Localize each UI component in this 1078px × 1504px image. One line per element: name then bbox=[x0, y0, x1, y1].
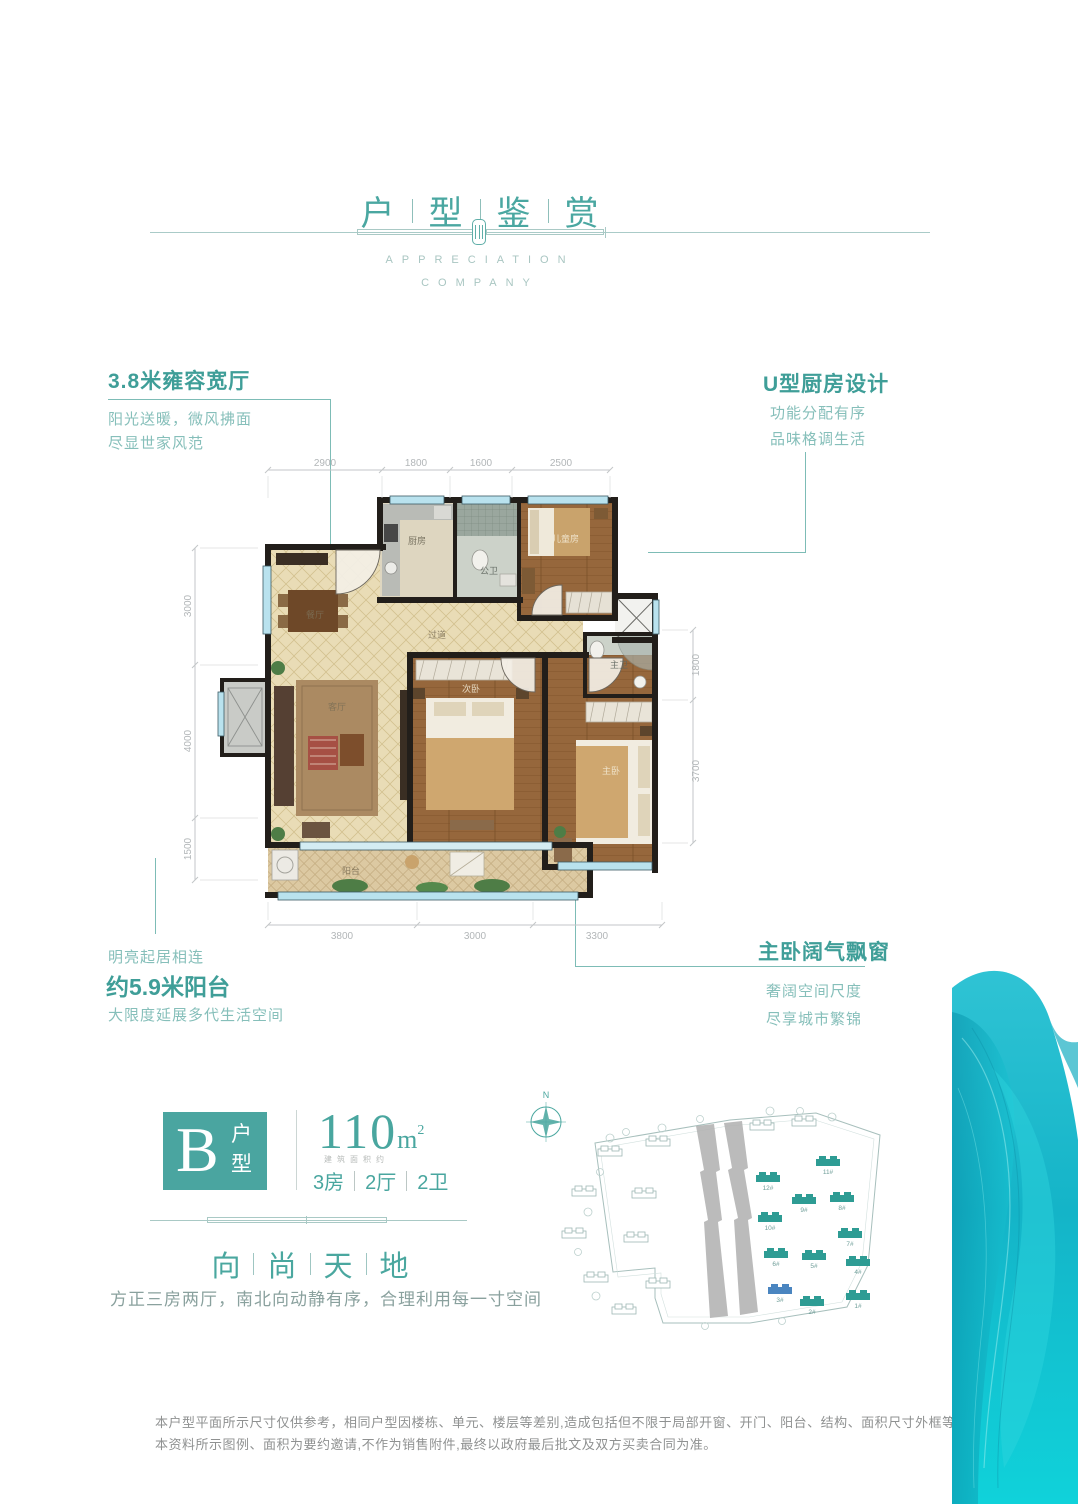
callout-line: 阳光送暖，微风拂面 bbox=[108, 408, 252, 429]
slogan: 向 尚 天 地 bbox=[150, 1243, 470, 1285]
callout-kitchen-title: U型厨房设计 bbox=[763, 368, 889, 398]
callout-line: 奢阔空间尺度 bbox=[766, 980, 862, 1001]
brochure-page: 户 型 鉴 赏 APPRECIATION COMPANY 3.8米雍容宽厅 阳光… bbox=[0, 0, 1078, 1504]
subtitle-appreciation: APPRECIATION bbox=[280, 254, 680, 266]
dim-label: 1800 bbox=[691, 653, 702, 676]
area-note: 建筑面积约 bbox=[324, 1154, 389, 1165]
callout-underline bbox=[575, 966, 865, 967]
building-label: 11# bbox=[823, 1169, 834, 1176]
area-superscript: 2 bbox=[417, 1123, 424, 1138]
callout-line: 功能分配有序 bbox=[770, 402, 866, 423]
spec-halls: 2厅 bbox=[365, 1166, 396, 1195]
disclaimer-line-1: 本户型平面所示尺寸仅供参考，相同户型因楼栋、单元、楼层等差别,造成包括但不限于局… bbox=[155, 1412, 996, 1431]
header-rule-tick bbox=[605, 227, 606, 238]
callout-line: 尽享城市繁锦 bbox=[766, 1008, 862, 1029]
subtitle-company: COMPANY bbox=[280, 277, 680, 289]
spec-separator bbox=[354, 1171, 355, 1191]
dim-label: 2900 bbox=[314, 458, 337, 469]
title-char: 型 bbox=[429, 186, 464, 235]
tagline: 方正三房两厅，南北向动静有序，合理利用每一寸空间 bbox=[110, 1285, 510, 1310]
building-label: 9# bbox=[800, 1207, 808, 1214]
dim-label: 1600 bbox=[470, 458, 493, 469]
slogan-char: 尚 bbox=[267, 1243, 296, 1285]
title-separator bbox=[548, 199, 549, 223]
badge-divider bbox=[296, 1110, 297, 1190]
floorplan-drawing: 餐厅 客厅 厨房 公卫 儿童房 过道 次卧 主卧 主卫 阳台 bbox=[150, 440, 750, 960]
room-label: 阳台 bbox=[342, 865, 360, 876]
building-label: 5# bbox=[810, 1263, 818, 1270]
room-label: 主卧 bbox=[602, 765, 620, 776]
building-label: 4# bbox=[854, 1269, 862, 1276]
room-label: 过道 bbox=[428, 629, 446, 640]
unit-letter: B bbox=[176, 1118, 219, 1182]
unit-type-label: 户 型 bbox=[231, 1120, 252, 1180]
slogan-separator bbox=[310, 1253, 311, 1275]
header-ornament-icon bbox=[472, 219, 486, 245]
building-label: 10# bbox=[765, 1225, 776, 1232]
unit-type-char: 型 bbox=[231, 1150, 252, 1180]
room-label: 公卫 bbox=[480, 566, 498, 576]
dim-label: 3300 bbox=[586, 931, 609, 942]
building-label: 8# bbox=[838, 1205, 846, 1212]
site-building-highlighted bbox=[768, 1284, 792, 1294]
building-label: 2# bbox=[808, 1309, 816, 1316]
callout-line: 大限度延展多代生活空间 bbox=[108, 1004, 284, 1025]
dim-label: 3000 bbox=[464, 931, 487, 942]
unit-badge: B 户 型 bbox=[163, 1112, 267, 1190]
site-buildings-filled: 12# 11# 10# 9# 8# 7# 6# 5# 4# 3# 2# 1# bbox=[756, 1156, 870, 1316]
slogan-char: 地 bbox=[380, 1243, 409, 1285]
slogan-char: 向 bbox=[211, 1243, 240, 1285]
room-label: 主卫 bbox=[610, 659, 628, 670]
area-unit: m bbox=[397, 1125, 417, 1154]
unit-type-char: 户 bbox=[231, 1120, 252, 1150]
callout-line: 品味格调生活 bbox=[770, 428, 866, 449]
compass-icon: N bbox=[526, 1090, 566, 1142]
room-label: 厨房 bbox=[408, 535, 426, 546]
callout-wide-living-title: 3.8米雍容宽厅 bbox=[108, 365, 250, 395]
title-separator bbox=[412, 199, 413, 223]
title-char: 鉴 bbox=[497, 186, 532, 235]
dim-label: 3000 bbox=[183, 594, 194, 617]
north-label: N bbox=[543, 1090, 550, 1100]
disclaimer-line-2: 本资料所示图例、面积为要约邀请,不作为销售附件,最终以政府最后批文及双方买卖合同… bbox=[155, 1434, 717, 1453]
dim-label: 2500 bbox=[550, 458, 573, 469]
dim-label: 1800 bbox=[405, 458, 428, 469]
building-label: 6# bbox=[772, 1261, 780, 1268]
wave-decoration bbox=[938, 948, 1078, 1504]
callout-underline bbox=[108, 399, 330, 400]
slogan-separator bbox=[253, 1253, 254, 1275]
area-value: 110 bbox=[318, 1103, 397, 1159]
room-label: 客厅 bbox=[328, 701, 346, 712]
callout-master-title: 主卧阔气飘窗 bbox=[758, 936, 890, 966]
dim-label: 3700 bbox=[691, 759, 702, 782]
dim-label: 4000 bbox=[183, 729, 194, 752]
slogan-separator bbox=[366, 1253, 367, 1275]
building-label: 12# bbox=[763, 1185, 774, 1192]
unit-specs: 3房 2厅 2卫 bbox=[313, 1166, 448, 1195]
deco-rule-box bbox=[207, 1217, 387, 1223]
deco-rule-tick bbox=[306, 1216, 307, 1224]
room-label: 儿童房 bbox=[552, 533, 579, 544]
callout-balcony-title: 约5.9米阳台 bbox=[106, 968, 230, 1002]
dim-label: 1500 bbox=[183, 837, 194, 860]
building-label: 1# bbox=[854, 1303, 862, 1310]
room-label: 餐厅 bbox=[306, 609, 324, 620]
title-char: 户 bbox=[361, 186, 396, 235]
dim-label: 3800 bbox=[331, 931, 354, 942]
spec-baths: 2卫 bbox=[417, 1166, 448, 1195]
site-road bbox=[696, 1121, 758, 1318]
spec-rooms: 3房 bbox=[313, 1166, 344, 1195]
header-rule-box-right bbox=[486, 229, 604, 235]
connector-line bbox=[805, 452, 806, 553]
building-label: 7# bbox=[846, 1241, 854, 1248]
header-rule-box-left bbox=[357, 229, 473, 235]
building-label: 3# bbox=[776, 1297, 784, 1304]
slogan-char: 天 bbox=[324, 1243, 353, 1285]
unit-area: 110m2 bbox=[318, 1106, 424, 1156]
room-label: 次卧 bbox=[462, 683, 480, 694]
title-char: 赏 bbox=[565, 186, 600, 235]
spec-separator bbox=[406, 1171, 407, 1191]
siteplan-drawing: N bbox=[500, 1080, 960, 1360]
